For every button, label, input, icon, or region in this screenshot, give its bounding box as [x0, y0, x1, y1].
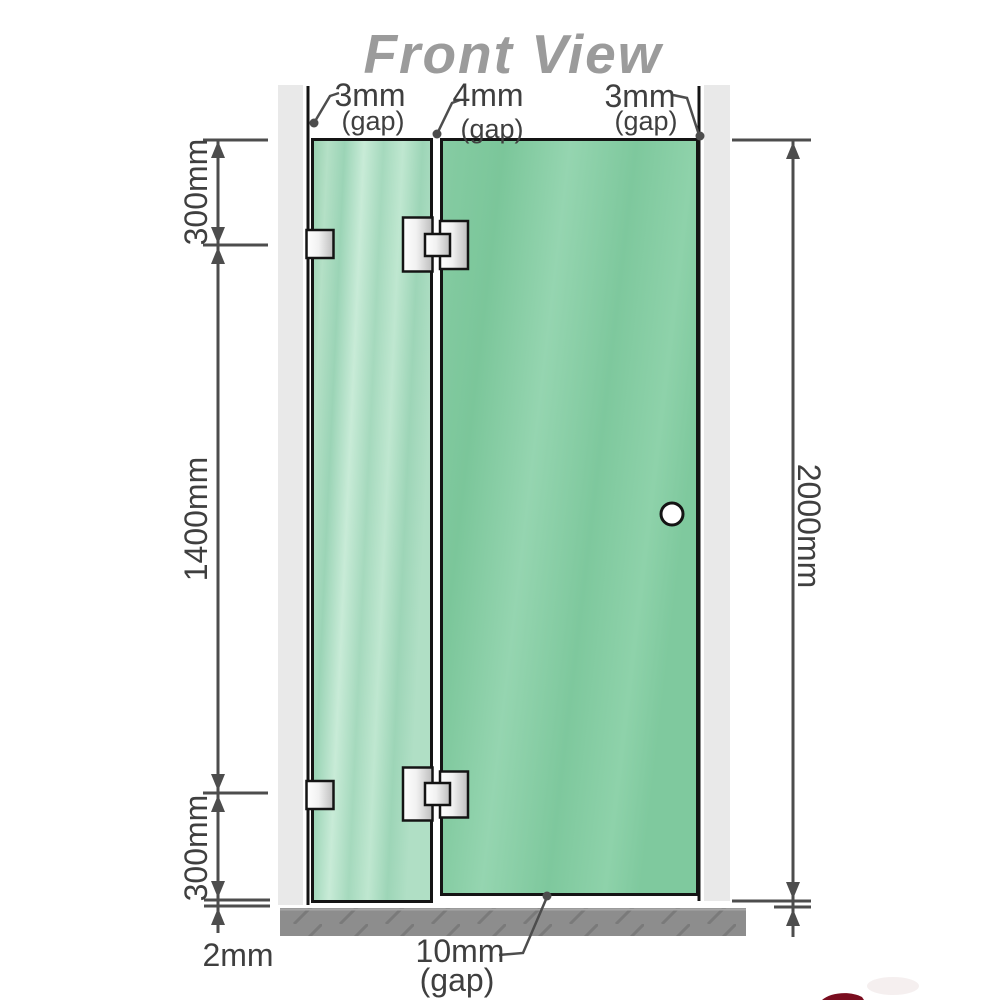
leader-dot-gap-top-right — [696, 132, 705, 141]
leader-dot-gap-bottom-door — [543, 892, 552, 901]
front-view-diagram: Front View 300mm 1400 — [0, 0, 1000, 1000]
label-gap-top-right-unit: (gap) — [614, 106, 677, 136]
label-gap-top-mid-unit: (gap) — [460, 114, 523, 144]
gap-callout-top-right: 3mm (gap) — [604, 78, 704, 141]
arrow-up-right-floorgap — [786, 909, 800, 926]
leader-dot-gap-top-mid — [433, 130, 442, 139]
gap-callout-bottom-door: 10mm (gap) — [416, 892, 552, 999]
label-overall-height: 2000mm — [791, 464, 827, 589]
right-wall — [704, 85, 730, 901]
label-gap-bottom-door-unit: (gap) — [420, 962, 495, 998]
left-wall — [278, 85, 303, 905]
arrow-up-floorgap — [211, 908, 225, 925]
hinge-top-bridge — [425, 234, 450, 256]
hinge-bottom — [403, 768, 468, 821]
label-floor-gap-fixed-panel: 2mm — [202, 937, 273, 973]
page-title: Front View — [363, 23, 663, 85]
gap-callout-top-mid: 4mm (gap) — [433, 77, 524, 144]
label-segment-top: 300mm — [178, 139, 214, 246]
gap-callout-top-left: 3mm (gap) — [310, 77, 406, 136]
label-gap-top-mid-value: 4mm — [452, 77, 523, 113]
right-dimension-lines: 2000mm — [732, 140, 827, 937]
wall-bracket-bottom — [307, 781, 334, 809]
arrow-up-seg2 — [211, 247, 225, 264]
red-watermark — [822, 993, 864, 1000]
door-panel-glass — [442, 140, 698, 895]
arrow-down-right-bottom — [786, 882, 800, 899]
hinge-bottom-bridge — [425, 783, 450, 805]
arrow-up-right-top — [786, 142, 800, 159]
label-segment-middle: 1400mm — [178, 457, 214, 582]
wall-bracket-top — [307, 230, 334, 258]
front-view-page: Front View 300mm 1400 — [0, 0, 1000, 1000]
floor-base — [280, 908, 746, 936]
door-knob — [661, 503, 683, 525]
watermark-faint-smudge — [867, 977, 919, 995]
hinge-top — [403, 218, 468, 272]
label-segment-bottom: 300mm — [178, 795, 214, 902]
arrow-down-seg2 — [211, 774, 225, 791]
left-dimension-lines: 300mm 1400mm 300mm 2mm — [178, 139, 274, 973]
leader-dot-gap-top-left — [310, 119, 319, 128]
label-gap-top-left-unit: (gap) — [341, 106, 404, 136]
